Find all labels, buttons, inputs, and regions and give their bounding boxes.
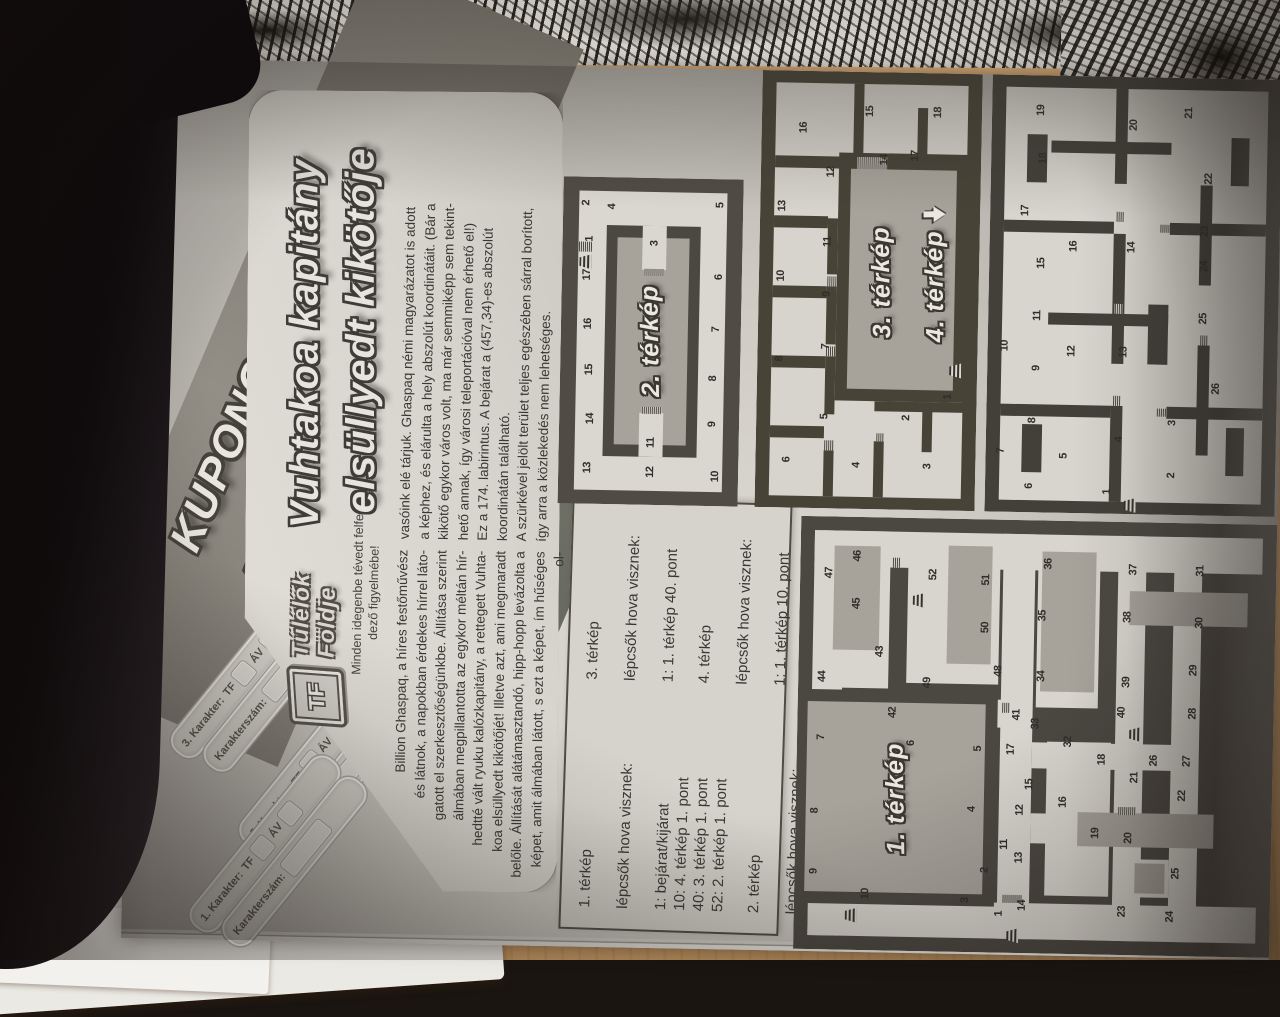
legend-map4: 4. térkép lépcsők hova visznek: 1: 1. té… <box>695 513 796 686</box>
map-1-maze: 1234567891011121314151617181920212223242… <box>793 516 1277 958</box>
map-point-map1-15: 15 <box>1023 779 1035 790</box>
map-point-map4-1: 1 <box>1101 489 1113 495</box>
stairs-icon <box>913 593 925 608</box>
map-point-map4-17: 17 <box>1019 205 1031 216</box>
map-point-map1-17: 17 <box>1005 744 1017 755</box>
map-point-map3-18: 18 <box>932 107 944 118</box>
map-point-map1-25: 25 <box>1169 868 1181 879</box>
map-point-map3-7: 7 <box>820 344 832 350</box>
map-point-map3-1: 1 <box>942 394 954 400</box>
map-point-map1-22: 22 <box>1175 790 1187 801</box>
map-point-map3-4: 4 <box>850 462 862 468</box>
map-point-map3-2: 2 <box>900 415 912 421</box>
map-point-map1-31: 31 <box>1194 565 1206 576</box>
map-point-map1-45: 45 <box>851 598 863 609</box>
map-point-map2-16: 16 <box>582 318 594 329</box>
map-point-map1-9: 9 <box>807 868 819 874</box>
map-point-map2-4: 4 <box>606 204 618 210</box>
map-point-map2-15: 15 <box>583 364 595 375</box>
map-point-map1-7: 7 <box>815 734 827 740</box>
map-point-map1-30: 30 <box>1193 617 1205 628</box>
map-point-map1-10: 10 <box>859 888 871 899</box>
stairs-icon <box>1123 498 1135 513</box>
map-point-map4-20: 20 <box>1128 119 1140 130</box>
map-4-maze: 1234567891011121314151617181920212223242… <box>984 74 1280 516</box>
map-point-map1-27: 27 <box>1181 756 1193 767</box>
map-point-map4-14: 14 <box>1126 242 1138 253</box>
map-point-map1-43: 43 <box>874 646 886 657</box>
coupon-tf-box <box>249 834 276 861</box>
map-point-map3-8: 8 <box>773 356 785 362</box>
map-point-map4-16: 16 <box>1068 241 1080 252</box>
coupon-tf-label: TF <box>240 855 258 873</box>
map-point-map4-6: 6 <box>1022 483 1034 489</box>
map-point-map1-28: 28 <box>1187 708 1199 719</box>
map-point-map1-20: 20 <box>1122 833 1134 844</box>
map-point-map1-11: 11 <box>998 839 1010 850</box>
coupon-tf-label: TF <box>221 681 239 699</box>
map-point-map2-9: 9 <box>706 421 718 427</box>
tf-logo-icon: TF <box>286 665 348 728</box>
map-point-map2-11: 11 <box>644 437 656 448</box>
map-point-map1-26: 26 <box>1148 755 1160 766</box>
tagline: Minden idegenbe tévedt felfe- dező figye… <box>348 492 384 693</box>
map-point-map2-2: 2 <box>581 200 593 206</box>
map-point-map3-3: 3 <box>921 464 933 470</box>
map-point-map1-5: 5 <box>972 746 984 752</box>
magazine-page: KUPONOK AZ ALANORI KRÓNIKÁBAN 3. Karakte… <box>121 58 1280 960</box>
map-point-map2-1: 1 <box>584 236 596 242</box>
map-point-map3-9: 9 <box>821 291 833 297</box>
map-point-map1-8: 8 <box>809 808 821 814</box>
map-point-map1-1: 1 <box>992 911 1004 917</box>
map-point-map1-12: 12 <box>1013 804 1025 815</box>
legend-map1: 1. térkép lépcsők hova visznek: 1: bejár… <box>575 687 734 912</box>
map-point-map3-5: 5 <box>818 414 830 420</box>
map-point-map4-7: 7 <box>994 448 1006 454</box>
map-point-map3-11: 11 <box>822 236 834 247</box>
coupon-tf-box <box>230 660 257 687</box>
map-3-maze: 123456789101112131415161718 3. térkép 4.… <box>754 70 982 511</box>
map-point-map1-41: 41 <box>1010 709 1022 720</box>
down-arrow-icon <box>924 206 946 222</box>
map-1-label: 1. térkép <box>880 743 911 855</box>
article-column-1: Billion Ghaspaq, a híres festőművész és … <box>389 550 569 882</box>
map-point-map1-18: 18 <box>1095 754 1107 765</box>
map-point-map1-2: 2 <box>979 867 991 873</box>
map-point-map1-40: 40 <box>1115 707 1127 718</box>
map-point-map4-12: 12 <box>1066 346 1078 357</box>
map-point-map1-34: 34 <box>1035 671 1047 682</box>
map-point-map4-15: 15 <box>1035 258 1047 269</box>
map-point-map1-42: 42 <box>887 707 899 718</box>
map-point-map2-8: 8 <box>707 376 719 382</box>
map-point-map4-10: 10 <box>999 340 1011 351</box>
map-point-map4-13: 13 <box>1118 347 1130 358</box>
stairs-legend-box: 1. térkép lépcsők hova visznek: 1: bejár… <box>558 497 792 936</box>
map-point-map4-8: 8 <box>1027 418 1039 424</box>
map-point-map1-21: 21 <box>1128 772 1140 783</box>
coupon-av-label: ÁV <box>248 646 267 665</box>
map-point-map1-37: 37 <box>1127 564 1139 575</box>
map-2-maze: 1234567891011121314151617 2. térkép <box>558 176 744 506</box>
map-point-map4-26: 26 <box>1210 383 1222 394</box>
map-point-map1-46: 46 <box>852 550 864 561</box>
map-point-map1-29: 29 <box>1187 665 1199 676</box>
map-point-map1-16: 16 <box>1056 797 1068 808</box>
map-point-map1-35: 35 <box>1036 610 1048 621</box>
map-point-map2-14: 14 <box>584 413 596 424</box>
article-title-line1: Vuhtakoa kapitány <box>282 158 328 528</box>
map-point-map3-17: 17 <box>909 150 921 161</box>
map-point-map2-5: 5 <box>714 202 726 208</box>
map-point-map4-3: 3 <box>1166 420 1178 426</box>
map-point-map2-6: 6 <box>712 274 724 280</box>
map-point-map4-25: 25 <box>1197 313 1209 324</box>
stairs-icon <box>1129 727 1141 742</box>
map-point-map1-13: 13 <box>1012 852 1024 863</box>
logo-name: Túlélők Földje <box>287 507 342 658</box>
article-column-2: vasóink elé tárjuk. Ghaspaq némi magyará… <box>395 87 560 542</box>
map-point-map1-49: 49 <box>921 677 933 688</box>
map-point-map4-4: 4 <box>1113 437 1125 443</box>
map-point-map1-39: 39 <box>1121 677 1133 688</box>
map-point-map4-2: 2 <box>1165 473 1177 479</box>
map-point-map1-24: 24 <box>1164 911 1176 922</box>
map-point-map2-13: 13 <box>581 462 593 473</box>
map-point-map4-19: 19 <box>1035 105 1047 116</box>
map-point-map1-23: 23 <box>1116 906 1128 917</box>
map-point-map1-4: 4 <box>966 806 978 812</box>
coupon-av-box <box>277 800 304 827</box>
map-point-map3-15: 15 <box>864 106 876 117</box>
stairs-icon <box>1006 928 1018 943</box>
map-point-map3-13: 13 <box>776 200 788 211</box>
map-point-map1-33: 33 <box>1029 718 1041 729</box>
map-point-map1-32: 32 <box>1062 736 1074 747</box>
map-point-map1-36: 36 <box>1042 558 1054 569</box>
map-point-map1-50: 50 <box>979 622 991 633</box>
map-point-map4-11: 11 <box>1031 310 1043 321</box>
map-point-map1-14: 14 <box>1016 900 1028 911</box>
stairs-icon <box>579 254 591 269</box>
map-point-map1-51: 51 <box>980 574 992 585</box>
map-point-map2-17: 17 <box>581 269 593 280</box>
map-point-map3-16: 16 <box>797 122 809 133</box>
map-point-map2-12: 12 <box>644 466 656 477</box>
stairs-icon <box>845 908 857 923</box>
map-point-map4-24: 24 <box>1198 261 1210 272</box>
map-point-map4-21: 21 <box>1183 107 1195 118</box>
coupon-av-label: ÁV <box>266 821 285 840</box>
map-point-map4-22: 22 <box>1202 173 1214 184</box>
map-point-map2-3: 3 <box>648 240 660 246</box>
map-point-map1-48: 48 <box>992 665 1004 676</box>
map-point-map3-10: 10 <box>775 270 787 281</box>
article-title-line2: elsüllyedt kikötője <box>338 147 384 513</box>
map-point-map4-18: 18 <box>1037 153 1049 164</box>
map-point-map3-6: 6 <box>780 457 792 463</box>
map-point-map1-47: 47 <box>823 567 835 578</box>
map-point-map3-14: 14 <box>878 154 890 165</box>
map-point-map1-19: 19 <box>1089 828 1101 839</box>
map-point-map1-3: 3 <box>959 897 971 903</box>
map-point-map2-7: 7 <box>710 327 722 333</box>
map-point-map1-52: 52 <box>927 569 939 580</box>
legend-map3: 3. térkép lépcsők hova visznek: 1: 1. té… <box>583 509 684 682</box>
map-point-map4-9: 9 <box>1030 365 1042 371</box>
map-2-label: 2. térkép <box>635 285 666 397</box>
map-3-label: 3. térkép <box>867 226 898 338</box>
map-4-pointer-label: 4. térkép <box>919 206 950 342</box>
stairs-icon <box>949 363 961 378</box>
map-point-map1-38: 38 <box>1122 612 1134 623</box>
map-point-map4-5: 5 <box>1058 453 1070 459</box>
map-point-map3-12: 12 <box>825 166 837 177</box>
map-point-map1-44: 44 <box>816 671 828 682</box>
map-point-map2-10: 10 <box>709 471 721 482</box>
map-point-map4-23: 23 <box>1198 226 1210 237</box>
